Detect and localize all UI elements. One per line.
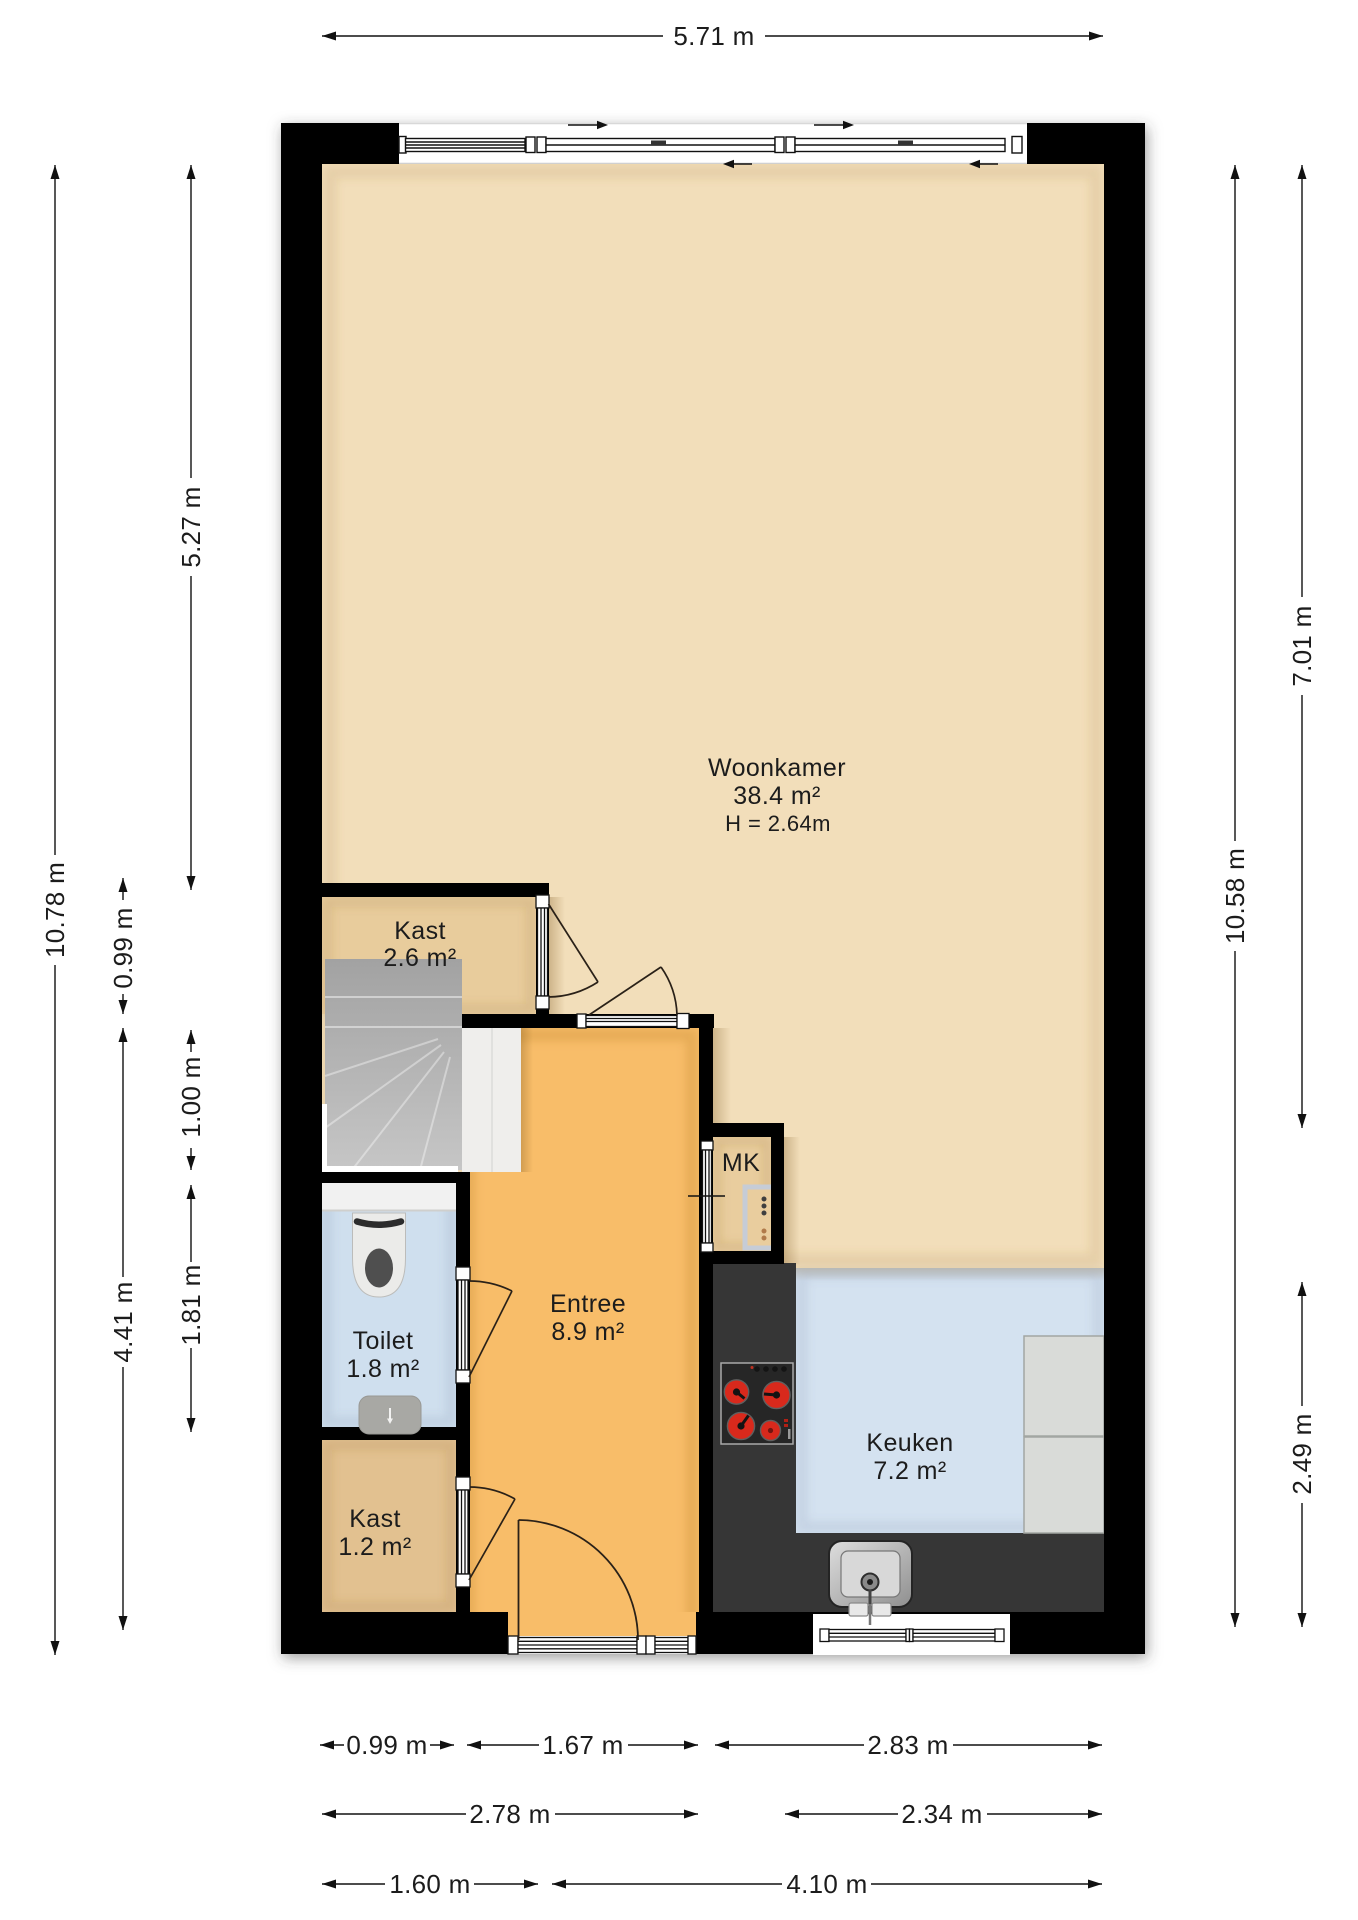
svg-text:1.81 m: 1.81 m — [176, 1264, 206, 1345]
svg-text:H = 2.64m: H = 2.64m — [725, 811, 831, 836]
svg-text:10.58 m: 10.58 m — [1220, 848, 1250, 944]
svg-text:2.49 m: 2.49 m — [1287, 1413, 1317, 1494]
svg-text:2.6 m²: 2.6 m² — [383, 944, 456, 972]
svg-text:Toilet: Toilet — [353, 1327, 414, 1355]
svg-text:2.83 m: 2.83 m — [867, 1730, 948, 1760]
svg-text:1.00 m: 1.00 m — [176, 1056, 206, 1137]
svg-text:5.71 m: 5.71 m — [673, 21, 754, 51]
svg-text:1.60 m: 1.60 m — [389, 1869, 470, 1899]
svg-text:1.2 m²: 1.2 m² — [338, 1533, 411, 1561]
svg-text:2.34 m: 2.34 m — [901, 1799, 982, 1829]
svg-text:8.9 m²: 8.9 m² — [551, 1318, 624, 1346]
svg-text:5.27 m: 5.27 m — [176, 486, 206, 567]
svg-text:Woonkamer: Woonkamer — [708, 754, 846, 782]
svg-text:4.41 m: 4.41 m — [108, 1281, 138, 1362]
svg-text:4.10 m: 4.10 m — [786, 1869, 867, 1899]
svg-text:1.8 m²: 1.8 m² — [346, 1355, 419, 1383]
svg-text:0.99 m: 0.99 m — [108, 907, 138, 988]
svg-text:MK: MK — [722, 1149, 760, 1177]
svg-text:Entree: Entree — [550, 1290, 626, 1318]
svg-text:1.67 m: 1.67 m — [542, 1730, 623, 1760]
svg-text:Kast: Kast — [349, 1505, 401, 1533]
svg-text:7.01 m: 7.01 m — [1287, 605, 1317, 686]
svg-text:Keuken: Keuken — [866, 1429, 953, 1457]
svg-text:Kast: Kast — [394, 917, 446, 945]
svg-text:0.99 m: 0.99 m — [346, 1730, 427, 1760]
svg-text:38.4 m²: 38.4 m² — [733, 782, 821, 810]
svg-text:10.78 m: 10.78 m — [40, 862, 70, 958]
svg-text:2.78 m: 2.78 m — [469, 1799, 550, 1829]
svg-text:7.2 m²: 7.2 m² — [873, 1457, 946, 1485]
